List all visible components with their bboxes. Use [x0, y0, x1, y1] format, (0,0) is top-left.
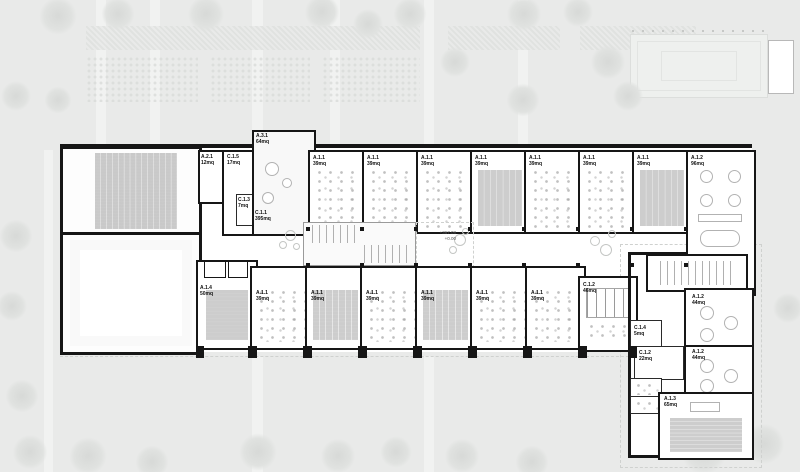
locker: [204, 261, 226, 278]
round-table: [700, 170, 713, 183]
auditorium-seating: [95, 153, 177, 229]
furniture: [640, 170, 684, 226]
desk-rows: [670, 418, 742, 452]
wc-fixtures: [633, 399, 659, 411]
tree: [63, 431, 113, 472]
furniture: [368, 168, 416, 228]
tree: [40, 82, 76, 118]
hall-floor: [80, 250, 182, 336]
tree: [768, 288, 800, 328]
planter: [285, 230, 296, 241]
furniture: [584, 168, 632, 228]
column: [522, 263, 526, 267]
wall-segment: [60, 232, 202, 235]
round-table: [728, 194, 741, 207]
column: [684, 227, 688, 231]
column: [360, 263, 364, 267]
furniture: [530, 168, 578, 228]
room-a11-bot-3: [360, 266, 421, 350]
pier: [358, 346, 367, 358]
room-a14: [196, 260, 258, 350]
furniture: [314, 168, 362, 228]
terrace-dashed-line: [60, 356, 634, 357]
room-a11-bot-5: [470, 266, 531, 350]
column: [468, 263, 472, 267]
tree: [435, 42, 475, 82]
room-label: A.1.139mq: [313, 155, 326, 168]
pier: [196, 346, 204, 358]
room-label: A.1.139mq: [421, 155, 434, 168]
room-label: C.1.246mq: [583, 282, 596, 295]
wing-stairwell: [646, 254, 748, 292]
room-label: A.1.139mq: [256, 290, 269, 303]
path: [44, 150, 53, 472]
furniture: [422, 168, 470, 228]
floor-plan-canvas: +367.08 +0.00: [0, 0, 800, 472]
round-table: [700, 194, 713, 207]
room-a11-bot-2: [305, 266, 366, 350]
room-label: C.1.1395mq: [255, 210, 271, 223]
room-a11-bot-1: [250, 266, 311, 350]
pier: [628, 346, 637, 358]
room-label: C.1.45mq: [634, 325, 646, 338]
shrub-bed: [322, 56, 420, 102]
tree: [439, 433, 485, 472]
garden-pavilion: [768, 40, 794, 94]
round-table: [282, 178, 292, 188]
wc-fixtures: [633, 381, 659, 395]
round-table: [262, 192, 274, 204]
planter: [449, 246, 457, 254]
tree: [0, 214, 38, 258]
room-label: A.1.139mq: [421, 290, 434, 303]
column: [360, 227, 364, 231]
tree: [348, 4, 388, 44]
tree: [233, 427, 283, 472]
pier: [523, 346, 532, 358]
pier: [248, 346, 257, 358]
planter: [279, 241, 287, 249]
tree: [501, 78, 545, 122]
round-table: [700, 306, 714, 320]
room-label: A.1.139mq: [475, 155, 488, 168]
terrace-dots: [632, 30, 764, 32]
tree: [130, 440, 174, 472]
pier: [303, 346, 312, 358]
tree: [510, 440, 554, 472]
room-label: A.1.244mq: [692, 294, 705, 307]
round-table: [724, 316, 738, 330]
room-label: A.1.365mq: [664, 396, 677, 409]
room-a11-bot-4: [415, 266, 476, 350]
column: [522, 227, 526, 231]
column: [306, 263, 310, 267]
tree: [33, 0, 83, 41]
column: [684, 263, 688, 267]
stair-treads: [312, 225, 356, 243]
room-label: A.1.139mq: [583, 155, 596, 168]
planter: [608, 230, 616, 238]
furniture: [478, 170, 522, 226]
pier: [413, 346, 422, 358]
room-label: A.2.112mq: [201, 154, 214, 167]
shelf: [698, 214, 742, 222]
room-label: A.1.139mq: [529, 155, 542, 168]
room-label: A.1.450mq: [200, 285, 213, 298]
room-label: A.3.164mq: [256, 133, 269, 146]
tree: [0, 76, 36, 116]
pier: [578, 346, 587, 358]
column: [468, 227, 472, 231]
room-label: A.1.296mq: [691, 155, 704, 168]
room-label: A.1.139mq: [637, 155, 650, 168]
room-label: A.1.139mq: [531, 290, 544, 303]
room-label: A.1.139mq: [366, 290, 379, 303]
room-label: A.1.244mq: [692, 349, 705, 362]
planter: [590, 236, 600, 246]
column: [306, 227, 310, 231]
tree: [315, 433, 361, 472]
tree: [608, 76, 648, 116]
round-table: [700, 379, 714, 393]
wc-fixtures: [586, 322, 628, 340]
tree: [375, 431, 417, 472]
room-label: C.1.517mq: [227, 154, 240, 167]
room-label: A.1.139mq: [311, 290, 324, 303]
oval-table: [700, 230, 740, 247]
column: [630, 227, 634, 231]
elevation-annotation: +367.08 +0.00: [420, 230, 456, 243]
planter: [600, 244, 612, 256]
column: [630, 263, 634, 267]
path: [424, 356, 434, 472]
planter: [293, 243, 300, 250]
north-facade-wall: [60, 144, 752, 148]
furniture: [206, 290, 248, 340]
round-table: [728, 170, 741, 183]
column: [576, 227, 580, 231]
pier: [468, 346, 477, 358]
room-a11-bot-6: [525, 266, 586, 350]
round-table: [265, 162, 279, 176]
round-table: [724, 369, 738, 383]
pool-basin: [661, 51, 737, 81]
shrub-bed: [86, 56, 198, 102]
shrub-bed: [210, 56, 310, 102]
stair-treads: [660, 261, 736, 285]
tree: [0, 374, 44, 418]
room-label: C.1.222mq: [639, 350, 652, 363]
room-label: C.1.37mq: [238, 197, 250, 210]
teacher-desk: [690, 402, 720, 412]
locker: [228, 261, 248, 278]
round-table: [700, 328, 714, 342]
pool-terrace: [630, 34, 768, 98]
stair-treads: [364, 245, 408, 263]
column: [414, 227, 418, 231]
room-label: A.1.139mq: [367, 155, 380, 168]
tree: [0, 286, 32, 326]
tree: [7, 429, 53, 472]
column: [414, 263, 418, 267]
room-label: A.1.139mq: [476, 290, 489, 303]
column: [576, 263, 580, 267]
